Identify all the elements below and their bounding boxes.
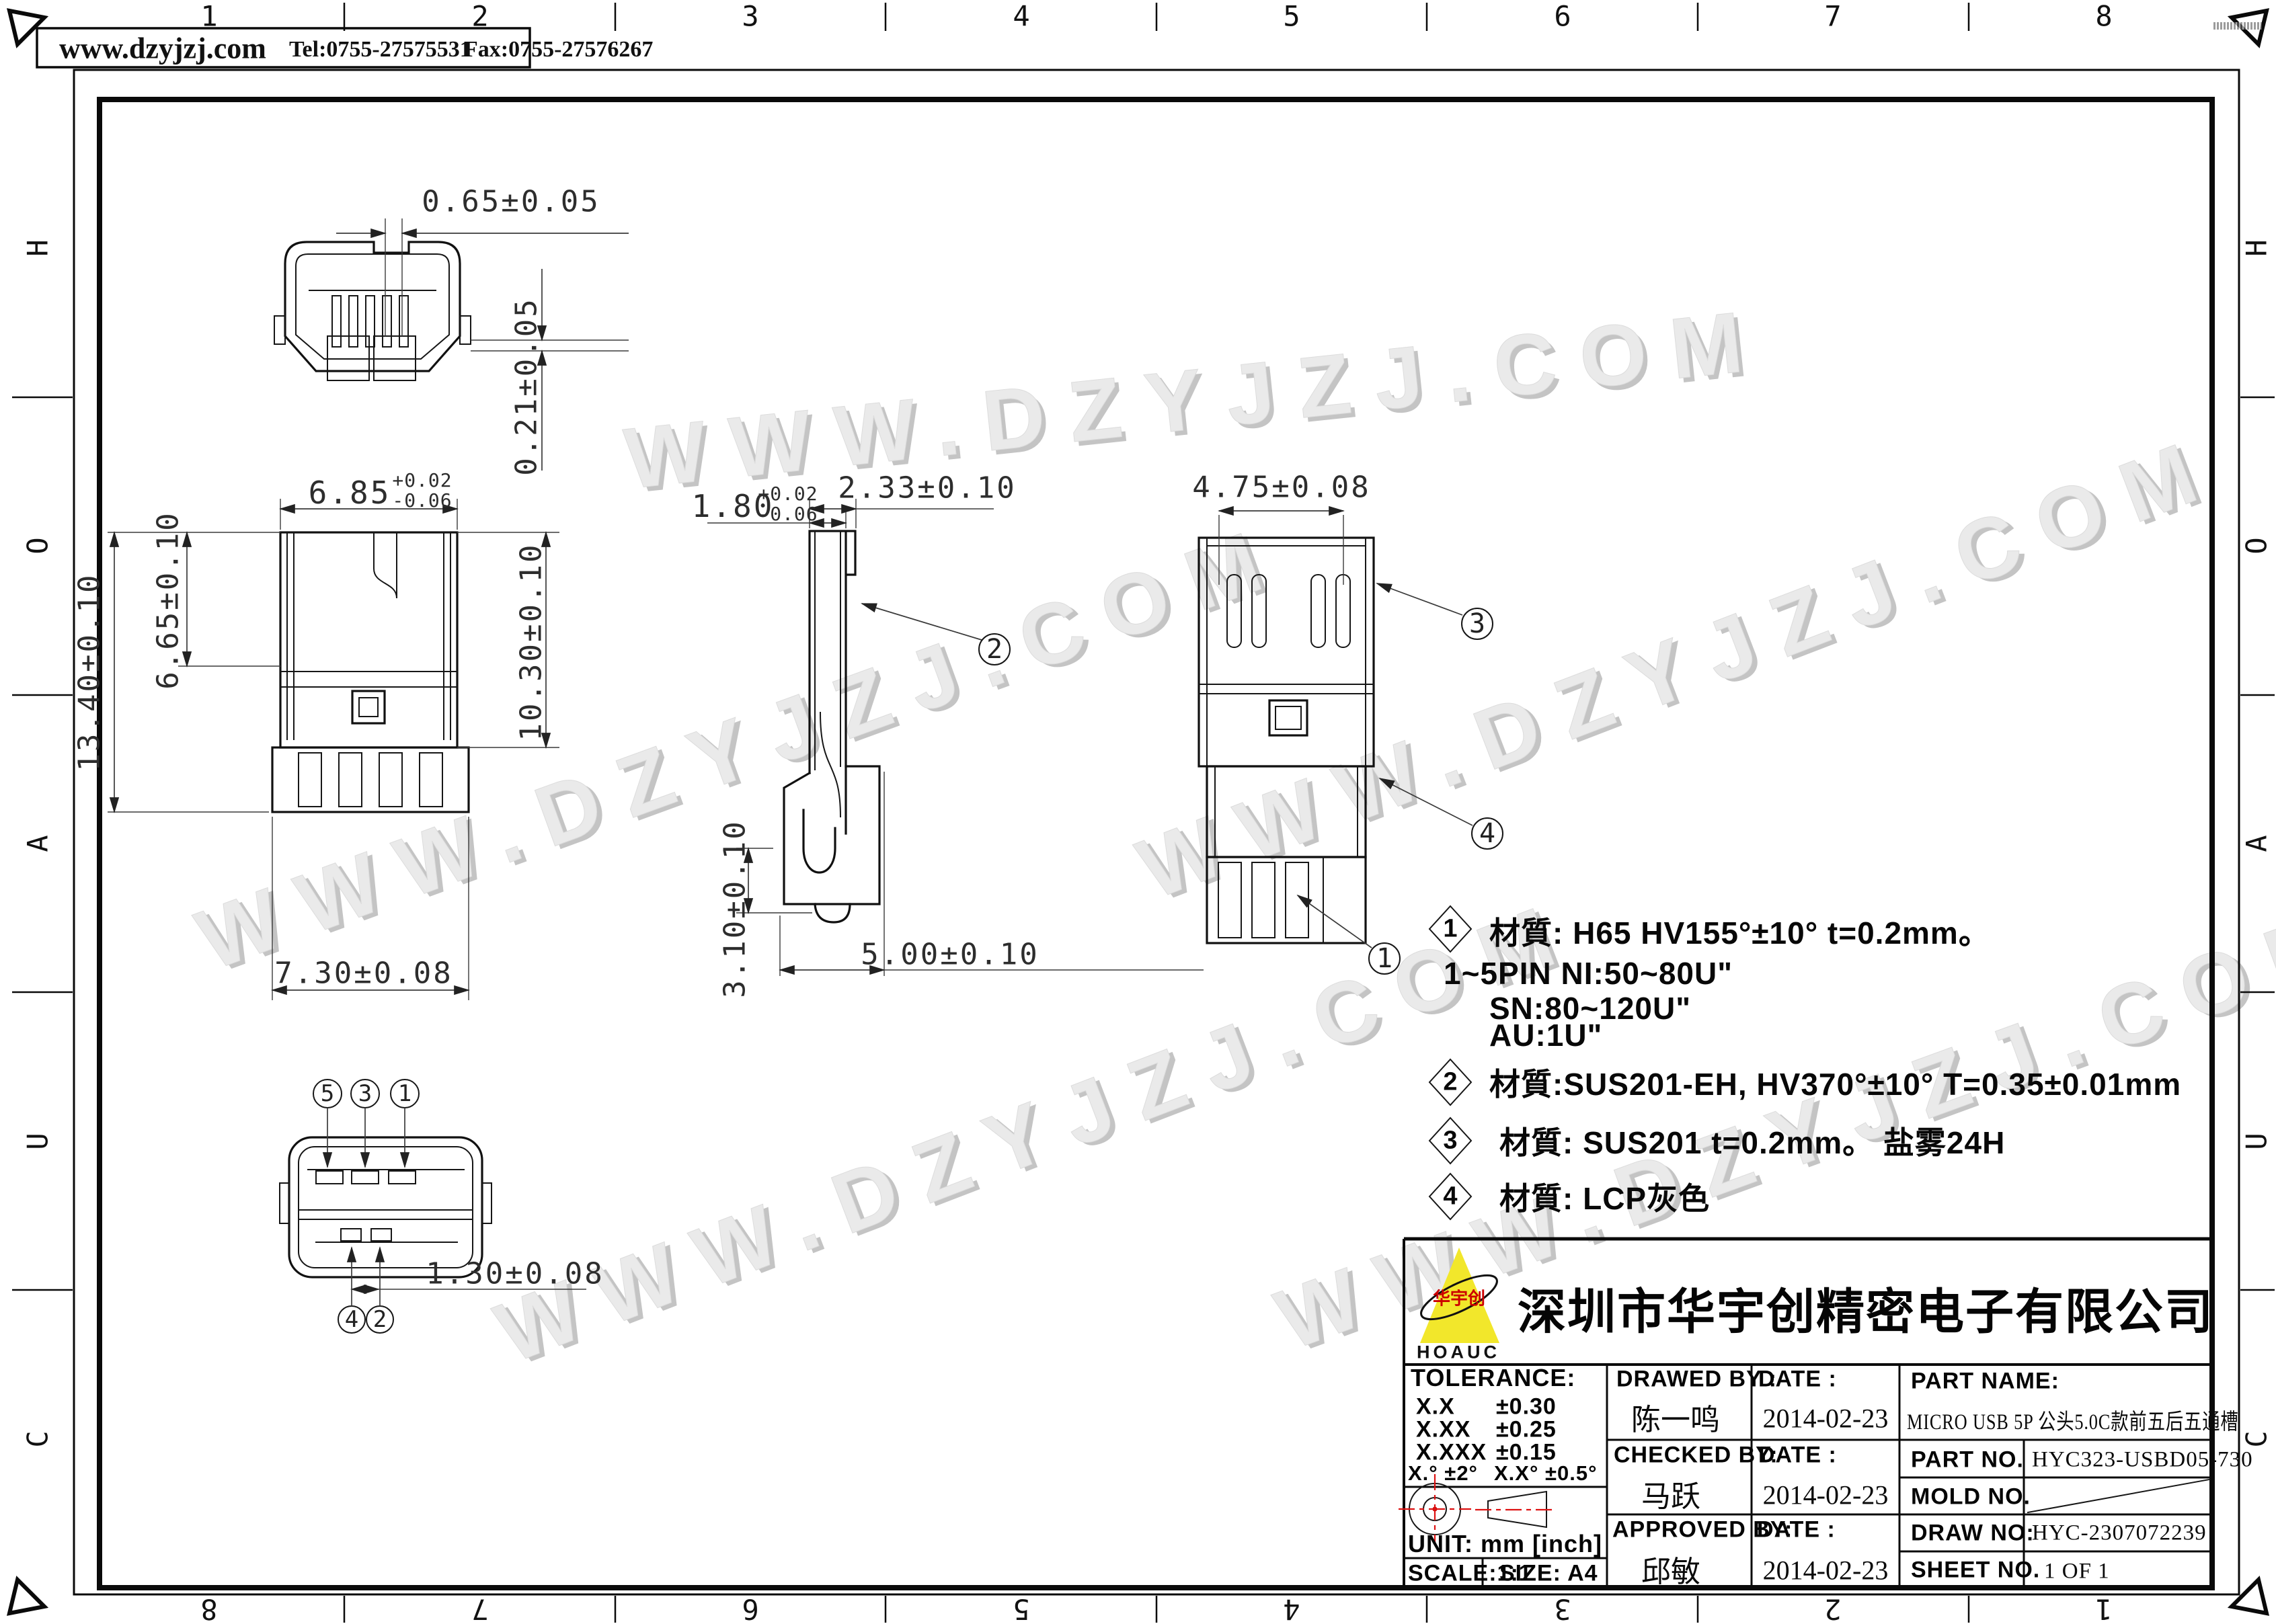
- pin-4: 4: [345, 1306, 358, 1333]
- dim-0.65: 0.65±0.05: [422, 185, 600, 219]
- note-4: 材質: LCP灰色: [1499, 1174, 1710, 1219]
- dim-5.00: 5.00±0.10: [861, 938, 1039, 972]
- note-3-number: 3: [1443, 1127, 1457, 1155]
- zone-row-left: C: [22, 1430, 54, 1447]
- face-view-linework: [274, 242, 471, 380]
- t-date1-label: DATE :: [1758, 1367, 1837, 1393]
- zone-col-bottom: 3: [1554, 1593, 1571, 1624]
- zone-row-right: H: [2240, 239, 2273, 256]
- note-2-number: 2: [1443, 1068, 1457, 1097]
- dim-2.33: 2.33±0.10: [838, 471, 1016, 505]
- zone-col-top: 7: [1824, 0, 1841, 33]
- t-checked-label: CHECKED BY:: [1614, 1443, 1778, 1469]
- header-tel: Tel:0755-27575531: [289, 37, 471, 63]
- note-plating-1: 1~5PIN NI:50~80U": [1444, 955, 1733, 991]
- pin-1: 1: [398, 1080, 411, 1107]
- dim-13.40: 13.40±0.10: [73, 573, 107, 772]
- zone-row-left: A: [22, 835, 54, 852]
- t-approved-date: 2014-02-23: [1763, 1555, 1889, 1586]
- zone-col-bottom: 8: [200, 1593, 217, 1624]
- pin-3: 3: [358, 1080, 372, 1107]
- zone-col-top: 6: [1554, 0, 1571, 33]
- t-partno: HYC323-USBD05-730: [2032, 1448, 2253, 1473]
- rear-view-linework: [1199, 538, 1374, 943]
- side-view-linework: [784, 531, 879, 922]
- logo-text: 华宇创: [1433, 1285, 1485, 1310]
- zone-row-right: A: [2240, 835, 2273, 852]
- note-4-number: 4: [1443, 1182, 1457, 1211]
- note-1: 材質: H65 HV155°±10° t=0.2mm。: [1489, 909, 1990, 953]
- pin-2: 2: [373, 1306, 387, 1333]
- logo-sub: HOAUC: [1417, 1342, 1500, 1363]
- dim-1.80-tol: +0.02 -0.06: [758, 484, 818, 524]
- dim-10.30: 10.30±0.10: [514, 543, 549, 741]
- fine-print: [2213, 22, 2262, 30]
- zone-row-right: O: [2240, 537, 2273, 554]
- zone-row-right: C: [2240, 1430, 2273, 1447]
- dim-6.65: 6.65±0.10: [151, 511, 186, 689]
- t-approved-by: 邱敏: [1641, 1547, 1700, 1590]
- zone-col-top: 3: [742, 0, 758, 33]
- t-drawed-date: 2014-02-23: [1763, 1403, 1889, 1434]
- zone-row-right: U: [2240, 1133, 2273, 1149]
- callout-4: 4: [1479, 818, 1495, 849]
- dimension-lines: [108, 218, 1343, 1289]
- note-3: 材質: SUS201 t=0.2mm。 盐雾24H: [1499, 1119, 2005, 1163]
- t-drawno-label: DRAW NO:: [1911, 1520, 2035, 1547]
- front-view-linework: [272, 532, 469, 812]
- zone-col-top: 4: [1013, 0, 1029, 33]
- header-website: www.dzyjzj.com: [59, 32, 266, 66]
- t-moldno-label: MOLD NO.: [1911, 1484, 2031, 1510]
- t-partno-label: PART NO.: [1911, 1447, 2024, 1473]
- t-unit: UNIT: mm [inch]: [1408, 1530, 1602, 1558]
- t-tol-angle-2: X.X° ±0.5°: [1494, 1461, 1597, 1486]
- t-size: SIZE: A4: [1499, 1561, 1598, 1587]
- note-plating-3: AU:1U": [1489, 1017, 1602, 1053]
- t-drawno: HYC-2307072239: [2032, 1521, 2207, 1546]
- t-drawed-label: DRAWED BY :: [1616, 1367, 1777, 1393]
- zone-row-left: U: [22, 1133, 54, 1149]
- t-partname-label: PART NAME:: [1911, 1369, 2059, 1395]
- pin-5: 5: [321, 1080, 334, 1107]
- dim-4.75: 4.75±0.08: [1192, 471, 1370, 505]
- zone-col-top: 1: [200, 0, 217, 33]
- zone-row-left: H: [22, 239, 54, 256]
- dim-1.30: 1.30±0.08: [426, 1257, 604, 1291]
- t-checked-by: 马跃: [1641, 1472, 1700, 1515]
- zone-col-bottom: 7: [471, 1593, 488, 1624]
- dim-6.85-tol: +0.02 -0.06: [392, 471, 452, 511]
- note-2: 材質:SUS201-EH, HV370°±10° T=0.35±0.01mm: [1489, 1060, 2181, 1104]
- dim-3.10: 3.10±0.10: [718, 819, 752, 998]
- zone-col-bottom: 6: [742, 1593, 758, 1624]
- t-sheetno-label: SHEET NO.: [1911, 1557, 2040, 1584]
- callout-1: 1: [1376, 943, 1392, 974]
- t-date3-label: DATE :: [1757, 1517, 1836, 1543]
- t-partname: MICRO USB 5P 公头5.0C款前五后五通槽: [1907, 1404, 2239, 1436]
- t-tol-angle-1: X.° ±2°: [1408, 1461, 1478, 1486]
- note-1-number: 1: [1443, 915, 1457, 944]
- zone-col-bottom: 1: [2095, 1593, 2112, 1624]
- header-fax: Fax:0755-27576267: [464, 37, 653, 63]
- zone-col-bottom: 2: [1824, 1593, 1841, 1624]
- drawing-sheet: WWW.DZYJZJ.COM WWW.DZYJZJ.COM WWW.DZYJZJ…: [0, 0, 2276, 1624]
- t-date2-label: DATE :: [1758, 1443, 1837, 1469]
- dim-6.85: 6.85: [309, 475, 391, 511]
- zone-col-bottom: 5: [1013, 1593, 1029, 1624]
- zone-row-left: O: [22, 537, 54, 554]
- dim-0.21: 0.21±0.05: [510, 297, 544, 475]
- dim-7.30: 7.30±0.08: [274, 957, 453, 991]
- zone-col-top: 8: [2095, 0, 2112, 33]
- callout-2: 2: [986, 634, 1003, 665]
- callout-3: 3: [1469, 608, 1485, 639]
- zone-col-top: 2: [471, 0, 488, 33]
- t-drawed-by: 陈一鸣: [1631, 1395, 1720, 1438]
- t-checked-date: 2014-02-23: [1763, 1479, 1889, 1511]
- company-name: 深圳市华宇创精密电子有限公司: [1518, 1272, 2214, 1343]
- zone-col-bottom: 4: [1283, 1593, 1300, 1624]
- t-tolerance-label: TOLERANCE:: [1411, 1364, 1575, 1392]
- t-sheetno: 1 OF 1: [2044, 1559, 2110, 1584]
- zone-col-top: 5: [1283, 0, 1300, 33]
